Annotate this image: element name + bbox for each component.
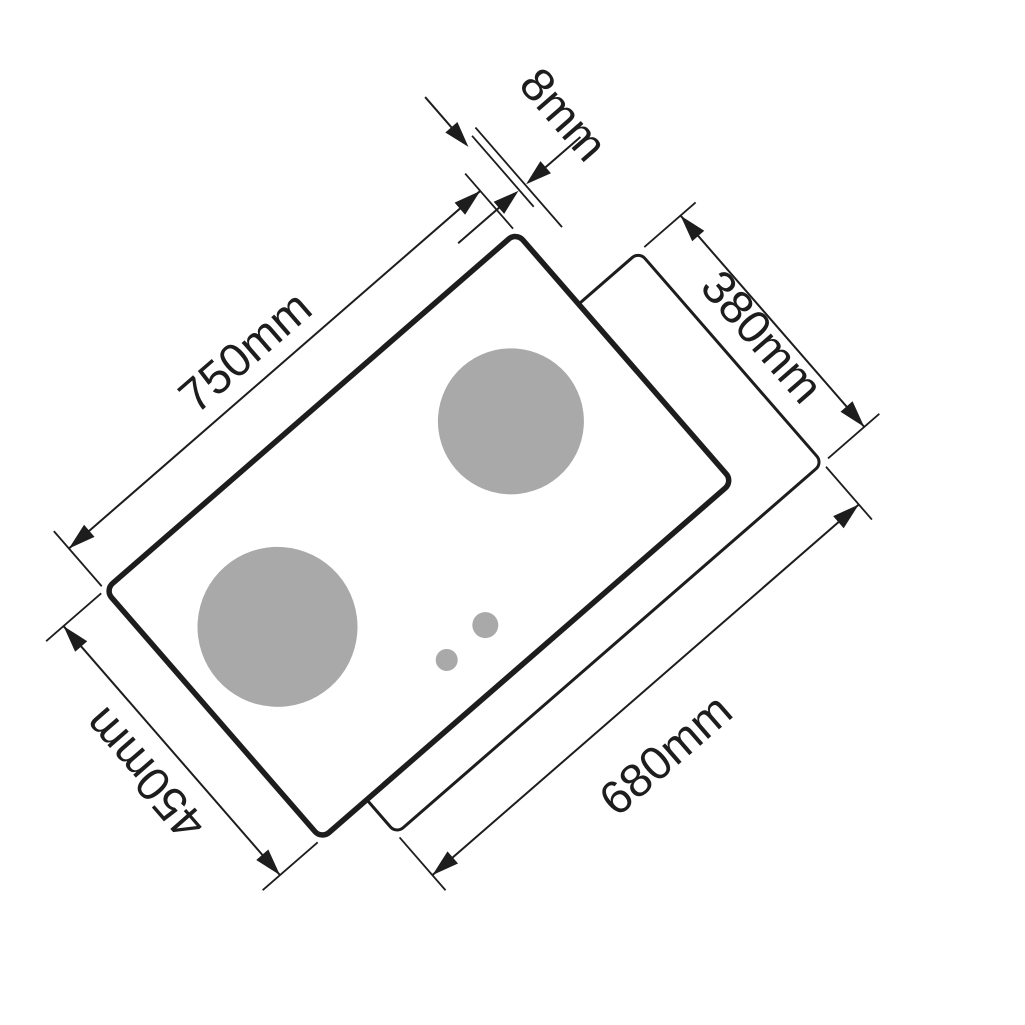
leader-arrow-shaft [425,97,454,130]
diagram-canvas: 750mm 450mm 380mm [0,0,1025,1025]
dimension-label-8mm: 8mm [510,57,619,171]
extension-line [400,837,446,890]
extension-line [828,414,879,459]
rotated-drawing: 750mm 450mm 380mm [0,8,973,1025]
hob-dimension-diagram: 750mm 450mm 380mm [0,0,1025,1025]
glass-edge-surface-line [475,128,562,228]
glass-edge-surface-line [472,136,534,207]
dimension-label-680mm: 680mm [589,683,742,826]
dimension-label-750mm: 750mm [168,280,321,423]
dimension-label-450mm: 450mm [73,698,216,851]
